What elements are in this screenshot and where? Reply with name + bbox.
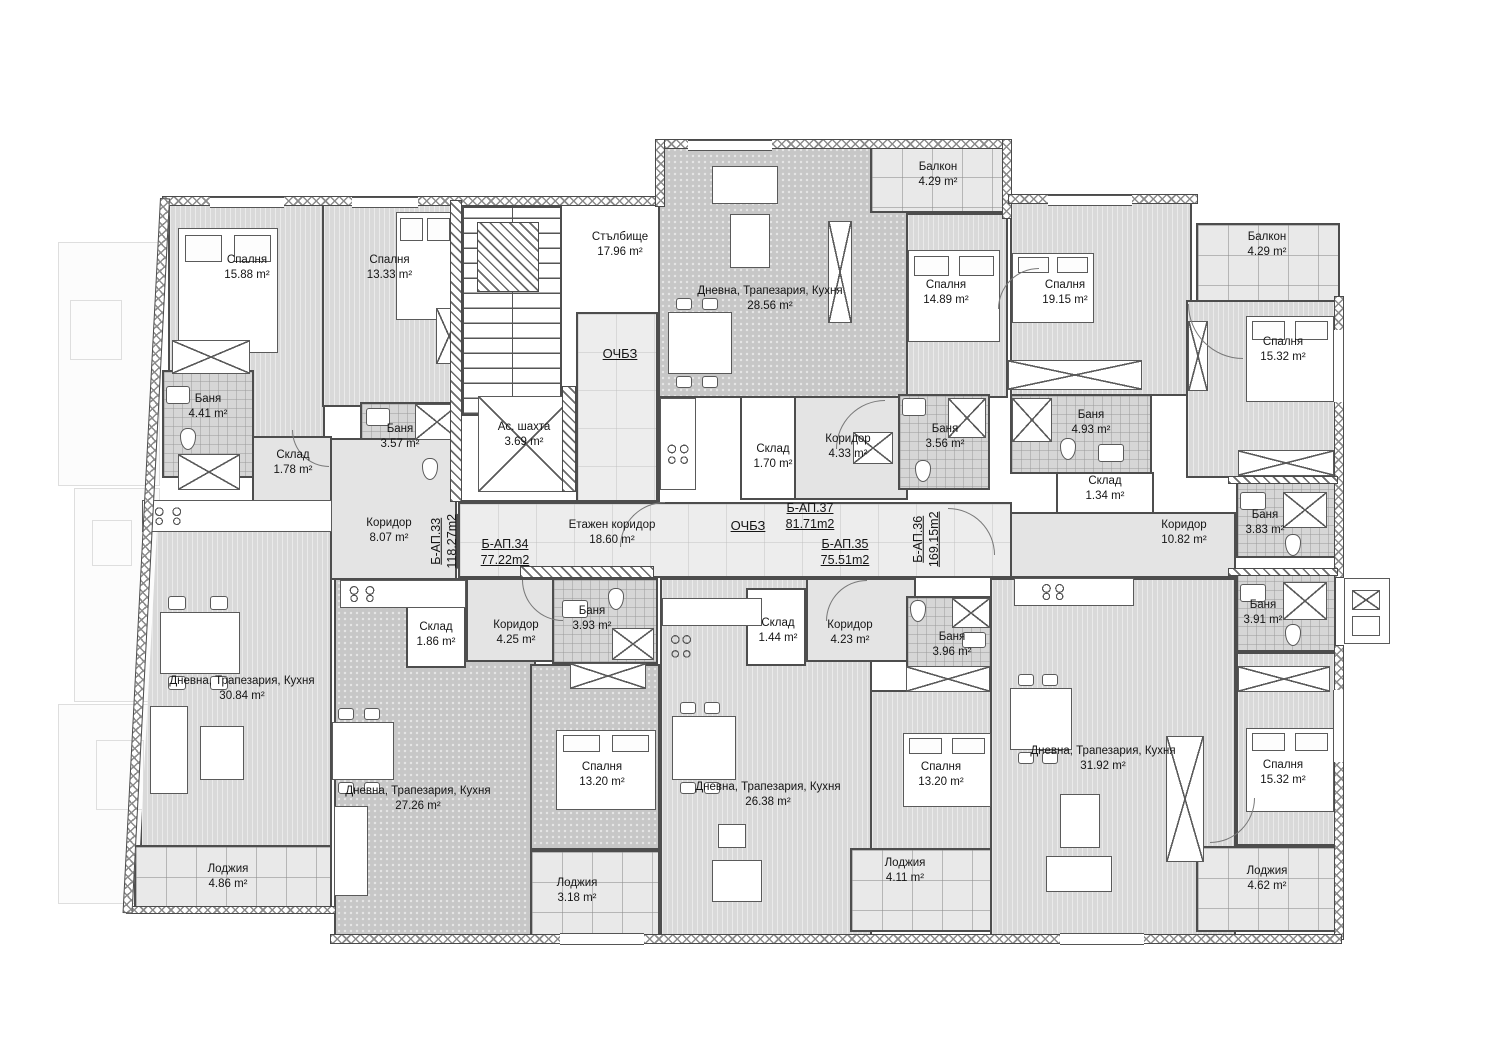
room-label: Склад 1.34 m² [1060, 474, 1150, 504]
room-label: Дневна, Трапезария, Кухня 30.84 m² [142, 674, 342, 704]
room-name: Дневна, Трапезария, Кухня [983, 744, 1223, 759]
room-area: 28.56 m² [650, 299, 890, 314]
label-apartment-ap37: Б-АП.37 81.71m2 [750, 500, 870, 533]
room-name: Баня [900, 422, 990, 437]
room-label: Спалня 19.15 m² [995, 278, 1135, 308]
room-area: 4.86 m² [138, 877, 318, 892]
sofa [712, 166, 778, 204]
structural-wall [1228, 476, 1338, 484]
room-label: Спалня 15.88 m² [177, 253, 317, 283]
dining-table [160, 612, 240, 674]
room-label: Баня 4.41 m² [162, 392, 254, 422]
window [560, 933, 644, 945]
label-elevator-shaft: Ас. шахта 3.69 m² [458, 420, 590, 450]
room-area: 31.92 m² [983, 759, 1223, 774]
sofa [712, 860, 762, 902]
window [352, 197, 418, 208]
utility-box [1352, 616, 1380, 636]
window [1048, 195, 1132, 206]
room-label: Дневна, Трапезария, Кухня 31.92 m² [983, 744, 1223, 774]
room-name: Склад [252, 448, 334, 463]
room-area: 1.86 m² [398, 635, 474, 650]
room-area: 15.32 m² [1213, 350, 1353, 365]
room-area: 3.93 m² [546, 619, 638, 634]
window [210, 197, 284, 208]
ap35-id: Б-АП.35 [785, 536, 905, 552]
room-area: 13.20 m² [872, 775, 1010, 790]
room-area: 1.70 m² [734, 457, 812, 472]
room-label: Спалня 15.32 m² [1213, 335, 1353, 365]
room-area: 27.26 m² [318, 799, 518, 814]
structural-wall [1228, 568, 1338, 576]
wardrobe [906, 666, 990, 692]
room-area: 4.25 m² [466, 633, 566, 648]
ap34-id: Б-АП.34 [445, 536, 565, 552]
room-area: 14.89 m² [876, 293, 1016, 308]
room-area: 4.23 m² [800, 633, 900, 648]
room-label: Лоджия 4.11 m² [836, 856, 974, 886]
room-name: Лоджия [1198, 864, 1336, 879]
exterior-wall [330, 934, 1342, 944]
room-label: Баня 4.93 m² [1046, 408, 1136, 438]
zone-ochbz-left [576, 312, 658, 502]
room-name: Дневна, Трапезария, Кухня [142, 674, 342, 689]
room-area: 4.11 m² [836, 871, 974, 886]
room-area: 4.29 m² [1197, 245, 1337, 260]
room-name: Спалня [1214, 758, 1352, 773]
chair [676, 376, 692, 388]
room-label: Коридор 4.23 m² [800, 618, 900, 648]
ghost-building-outline [70, 300, 122, 360]
sofa [1046, 856, 1112, 892]
sink [902, 398, 926, 416]
elevator-area: 3.69 m² [458, 435, 590, 450]
room-name: Склад [734, 442, 812, 457]
room-label: Балкон 4.29 m² [1197, 230, 1337, 260]
ap35-total-area: 75.51m2 [785, 552, 905, 568]
room-name: Баня [162, 392, 254, 407]
label-apartment-ap36: Б-АП.36 169.15m2 [910, 484, 943, 594]
stove [1038, 582, 1068, 602]
chair [338, 708, 354, 720]
room-name: Склад [1060, 474, 1150, 489]
room-area: 4.29 m² [868, 175, 1008, 190]
room-label: Дневна, Трапезария, Кухня 27.26 m² [318, 784, 518, 814]
window [688, 140, 772, 151]
wardrobe [1238, 666, 1330, 692]
stairwell-area: 17.96 m² [545, 245, 695, 260]
ap36-total-area: 169.15m2 [926, 484, 942, 594]
room-area: 19.15 m² [995, 293, 1135, 308]
room-name: Спалня [177, 253, 317, 268]
room-area: 26.38 m² [668, 795, 868, 810]
room-name: Баня [352, 422, 448, 437]
room-name: Спалня [322, 253, 457, 268]
dining-table [332, 722, 394, 780]
room-label: Спалня 14.89 m² [876, 278, 1016, 308]
structural-wall [477, 222, 539, 292]
stove [664, 440, 692, 468]
stove [148, 504, 188, 528]
floor-corridor-name: Етажен коридор [512, 518, 712, 533]
sofa [150, 706, 188, 794]
coffee-table [200, 726, 244, 780]
room-name: Баня [1046, 408, 1136, 423]
window [1060, 933, 1144, 945]
utility-box [1352, 590, 1380, 610]
exterior-wall [126, 906, 336, 914]
room-name: Дневна, Трапезария, Кухня [650, 284, 890, 299]
room-label: Баня 3.91 m² [1218, 598, 1308, 628]
ap34-total-area: 77.22m2 [445, 552, 565, 568]
elevator-name: Ас. шахта [458, 420, 590, 435]
dining-table [672, 716, 736, 780]
room-name: Лоджия [836, 856, 974, 871]
wardrobe [1008, 360, 1142, 390]
wardrobe [1238, 450, 1334, 476]
chair [704, 702, 720, 714]
room-label: Лоджия 3.18 m² [510, 876, 644, 906]
room-area: 30.84 m² [142, 689, 342, 704]
sink [1098, 444, 1124, 462]
room-label: Баня 3.56 m² [900, 422, 990, 452]
room-area: 13.33 m² [322, 268, 457, 283]
room-area: 8.07 m² [330, 531, 448, 546]
ghost-building-outline [92, 520, 132, 566]
room-label: Спалня 13.20 m² [532, 760, 672, 790]
dining-table [1010, 688, 1072, 750]
ap36-id: Б-АП.36 [910, 484, 926, 594]
exterior-wall [655, 139, 665, 207]
room-area: 3.56 m² [900, 437, 990, 452]
room-name: Спалня [876, 278, 1016, 293]
chair [168, 596, 186, 610]
room-label: Баня 3.83 m² [1220, 508, 1310, 538]
stairwell-name: Стълбище [545, 230, 695, 245]
label-stairwell: Стълбище 17.96 m² [545, 230, 695, 260]
room-label: Склад 1.86 m² [398, 620, 474, 650]
room-name: Спалня [532, 760, 672, 775]
room-area: 4.41 m² [162, 407, 254, 422]
room-label: Баня 3.96 m² [906, 630, 998, 660]
room-name: Склад [398, 620, 474, 635]
room-label: Лоджия 4.62 m² [1198, 864, 1336, 894]
ap37-id: Б-АП.37 [750, 500, 870, 516]
label-apartment-ap35: Б-АП.35 75.51m2 [785, 536, 905, 569]
room-label: Спалня 15.32 m² [1214, 758, 1352, 788]
room-label: Склад 1.78 m² [252, 448, 334, 478]
room-label: Спалня 13.33 m² [322, 253, 457, 283]
wardrobe [172, 340, 250, 374]
room-area: 1.78 m² [252, 463, 334, 478]
room-label: Дневна, Трапезария, Кухня 26.38 m² [668, 780, 868, 810]
chair [680, 702, 696, 714]
chair [1042, 674, 1058, 686]
label-apartment-ap34: Б-АП.34 77.22m2 [445, 536, 565, 569]
stove [668, 628, 694, 664]
room-name: Лоджия [138, 862, 318, 877]
room-name: Балкон [868, 160, 1008, 175]
room-name: Дневна, Трапезария, Кухня [318, 784, 518, 799]
chair [364, 708, 380, 720]
room-label: Лоджия 4.86 m² [138, 862, 318, 892]
dining-table [668, 312, 732, 374]
label-ochbz-left: ОЧБЗ [572, 346, 668, 363]
room-label: Склад 1.70 m² [734, 442, 812, 472]
room-label: Баня 3.93 m² [546, 604, 638, 634]
kitchen-counter [1014, 578, 1134, 606]
room-name: Спалня [995, 278, 1135, 293]
room-area: 3.57 m² [352, 437, 448, 452]
room-name: Спалня [1213, 335, 1353, 350]
chair [210, 596, 228, 610]
room-label: Балкон 4.29 m² [868, 160, 1008, 190]
structural-wall [450, 200, 462, 502]
room-name: Баня [546, 604, 638, 619]
coffee-table [1060, 794, 1100, 848]
shower [952, 598, 990, 628]
room-area: 13.20 m² [532, 775, 672, 790]
room-name: Лоджия [510, 876, 644, 891]
room-label: Дневна, Трапезария, Кухня 28.56 m² [650, 284, 890, 314]
room-name: Дневна, Трапезария, Кухня [668, 780, 868, 795]
room-label: Коридор 8.07 m² [330, 516, 448, 546]
stove [344, 584, 380, 604]
room-area: 3.91 m² [1218, 613, 1308, 628]
room-area: 15.32 m² [1214, 773, 1352, 788]
wardrobe [570, 663, 646, 689]
ghost-building-outline [58, 242, 160, 486]
room-area: 1.34 m² [1060, 489, 1150, 504]
floor-plan-canvas: Стълбище 17.96 m² Ас. шахта 3.69 m² Етаж… [0, 0, 1500, 1060]
room-name: Балкон [1197, 230, 1337, 245]
sofa [334, 806, 368, 896]
window [1333, 690, 1344, 762]
room-name: Коридор [330, 516, 448, 531]
room-name: Баня [1218, 598, 1308, 613]
room-area: 4.93 m² [1046, 423, 1136, 438]
bed [178, 228, 278, 353]
room-name: Баня [906, 630, 998, 645]
coffee-table [730, 214, 770, 268]
chair [1018, 674, 1034, 686]
chair [702, 376, 718, 388]
room-area: 15.88 m² [177, 268, 317, 283]
coffee-table [718, 824, 746, 848]
room-area: 4.62 m² [1198, 879, 1336, 894]
room-area: 3.96 m² [906, 645, 998, 660]
room-name: Баня [1220, 508, 1310, 523]
room-area: 3.18 m² [510, 891, 644, 906]
shower [178, 454, 240, 490]
room-name: Коридор [800, 618, 900, 633]
room-area: 3.83 m² [1220, 523, 1310, 538]
room-label: Баня 3.57 m² [352, 422, 448, 452]
ap37-total-area: 81.71m2 [750, 516, 870, 532]
ochbz-left-text: ОЧБЗ [572, 346, 668, 363]
